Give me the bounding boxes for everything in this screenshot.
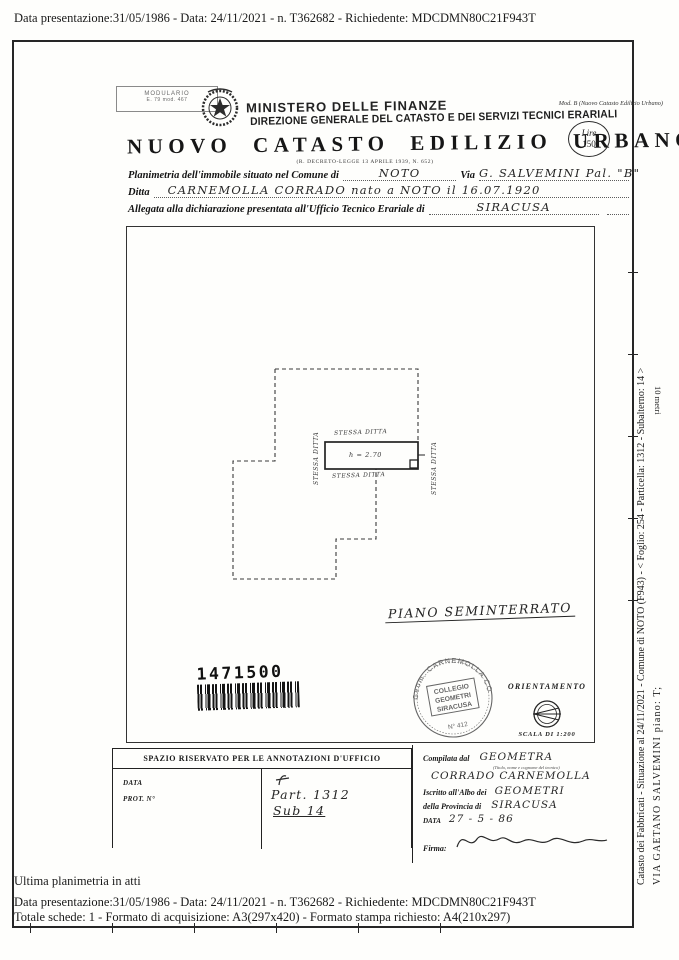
ufficio-trailing-rule [607,214,629,215]
overlay-bottom-line1: Data presentazione:31/05/1986 - Data: 24… [14,895,536,910]
form-line-comune: Planimetria dell'immobile situato nel Co… [128,166,633,181]
annotation-sub: Sub 14 [273,803,325,818]
form-line-ufficio: Allegata alla dichiarazione presentata a… [128,200,633,215]
barcode-block: 1471500 [196,661,300,711]
barcode-number: 1471500 [196,661,299,684]
ditta-label: Ditta [128,187,150,198]
sidebar-caption-line1: Catasto dei Fabbricati - Situazione al 2… [636,287,647,885]
provincia-label: della Provincia di [423,802,481,811]
lire-150-stamp: Lire 150 [568,121,610,157]
prot-label: PROT. N° [123,795,155,803]
annotation-part: Part. 1312 [271,787,350,802]
scale-label: SCALA DI 1:200 [507,731,587,738]
comune-value-field: NOTO [343,166,457,181]
provincia-value: SIRACUSA [491,799,558,811]
albo-value: GEOMETRI [495,785,565,797]
ditta-value-field: CARNEMOLLA CORRADO nato a NOTO il 16.07.… [154,183,629,198]
data-label: DATA [123,779,143,787]
annotations-header: SPAZIO RISERVATO PER LE ANNOTAZIONI D'UF… [113,749,411,769]
annotations-divider [261,769,262,849]
handwritten-mark [273,773,293,787]
albo-label: Iscritto all'Albo dei [423,788,487,797]
overlay-top-line: Data presentazione:31/05/1986 - Data: 24… [14,11,536,26]
plan-frame: STESSA DITTA STESSA DITTA STESSA DITTA S… [126,226,595,743]
plan-label-right: STESSA DITTA [431,442,438,495]
firma-row: Firma: [423,827,626,853]
sidebar-caption-line2: VIA GAETANO SALVEMINI piano: T; [652,600,663,885]
provincia-row: della Provincia di SIRACUSA [423,799,626,811]
comune-value: NOTO [379,166,421,180]
compiler-box: Compilata dal GEOMETRA (Titolo, nome e c… [412,745,634,863]
ruler-scale-label: 10 metri [653,386,663,415]
ditta-value: CARNEMOLLA CORRADO nato a NOTO il 16.07.… [168,183,541,197]
state-emblem-icon [198,84,242,132]
compiler-data-label: DATA [423,817,441,825]
ufficio-value: SIRACUSA [476,200,550,214]
plan-label-left: STESSA DITTA [313,432,320,485]
albo-row: Iscritto all'Albo dei GEOMETRI [423,785,626,797]
overlay-bottom-line2: Totale schede: 1 - Formato di acquisizio… [14,910,510,925]
law-subtitle: (R. DECRETO-LEGGE 13 APRILE 1939, N. 652… [240,159,490,165]
surveyor-round-stamp: Geom. CARNEMOLLA CORRADO COLLEGIO GEOMET… [400,645,507,752]
via-value-field: G. SALVEMINI Pal. "B" [479,166,629,181]
lire-stamp-word: Lire [569,128,609,139]
compiled-label: Compilata dal [423,754,469,763]
compiler-data-value: 27 - 5 - 86 [449,813,514,825]
data-row: DATA 27 - 5 - 86 [423,813,626,825]
comune-label: Planimetria dell'immobile situato nel Co… [128,170,339,181]
overlay-bottom-note: Ultima planimetria in atti [14,874,141,889]
via-value: G. SALVEMINI Pal. "B" [479,166,640,180]
compiled-row: Compilata dal GEOMETRA [423,751,626,763]
ruler-tick [628,272,638,273]
barcode-icon [197,681,300,711]
room-height-label: h = 2.70 [349,451,382,459]
ufficio-value-field: SIRACUSA [429,200,599,215]
ufficio-label: Allegata alla dichiarazione presentata a… [128,204,425,215]
mod-b-label: Mod. B (Nuovo Catasto Edilizio Urbano) [548,100,663,107]
signature-scribble [451,827,611,853]
form-line-ditta: Ditta CARNEMOLLA CORRADO nato a NOTO il … [128,183,633,198]
office-annotations-box: SPAZIO RISERVATO PER LE ANNOTAZIONI D'UF… [112,748,412,848]
orientation-compass-icon [532,699,562,729]
firma-label: Firma: [423,844,447,853]
scanned-cadastral-document: Data presentazione:31/05/1986 - Data: 24… [0,0,679,960]
compiled-name: CORRADO CARNEMOLLA [431,770,626,782]
stamp-number: N° 412 [447,720,468,731]
room-corner-detail [410,460,418,468]
compiled-value: GEOMETRA [479,751,553,763]
orientation-label: ORIENTAMENTO [507,682,587,691]
via-label: Via [460,170,475,181]
lire-stamp-value: 150 [569,139,609,150]
